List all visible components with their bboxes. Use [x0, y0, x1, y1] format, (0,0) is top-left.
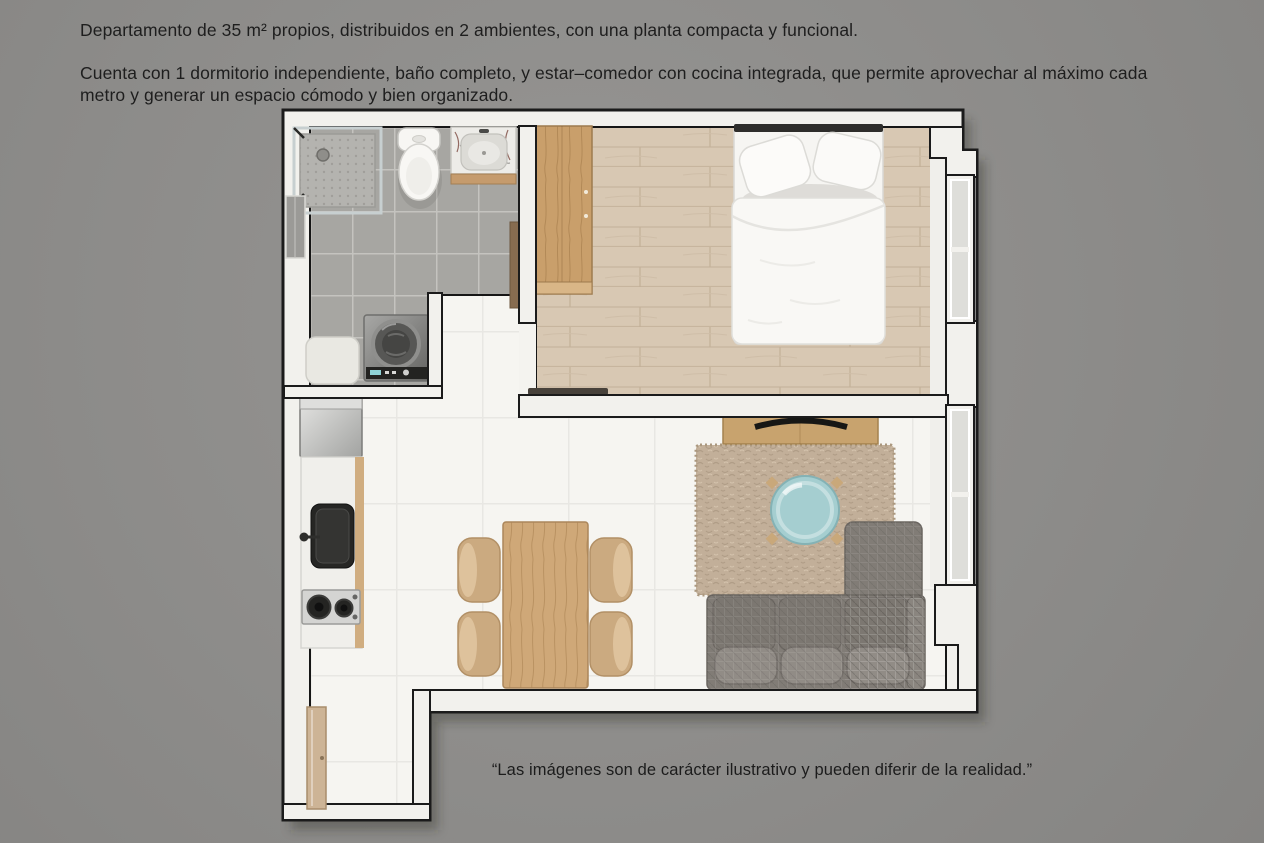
dining-chair [458, 612, 500, 676]
floorplan-image [0, 0, 1264, 843]
duvet [732, 198, 885, 344]
shower [294, 128, 381, 213]
bedroom-doorway [519, 324, 536, 396]
left-wall-window [286, 196, 305, 258]
dining-table [503, 522, 588, 688]
toilet [398, 128, 442, 209]
wall-bath-bedroom [519, 126, 536, 323]
wall-corridor-right [413, 690, 430, 806]
bedroom-wall-shelf [528, 388, 608, 395]
wardrobe [532, 126, 592, 294]
wall-bath-bottom [284, 386, 442, 398]
bedroom-window [946, 175, 974, 323]
wall-bath-hall [428, 293, 442, 398]
bedroom-window-sill [930, 152, 947, 395]
living-window-sill [930, 417, 947, 587]
bed-frame [734, 124, 883, 132]
wall-corridor-bottom [283, 804, 430, 820]
living-window [946, 405, 974, 585]
wall-living-bottom [413, 690, 977, 712]
washing-machine [364, 315, 429, 381]
dining-chair [590, 538, 632, 602]
listing-image: { "page": { "background_color": "#8d8c8a… [0, 0, 1264, 843]
faucet [479, 129, 489, 133]
laundry-basket [306, 337, 359, 384]
door-handle [320, 756, 324, 760]
vanity-cabinet [451, 174, 516, 184]
cooktop [302, 590, 360, 624]
dining-chair [590, 612, 632, 676]
vanity-sink [451, 127, 516, 184]
wall-window-pier [946, 321, 977, 407]
entry-door [307, 707, 326, 809]
refrigerator [300, 395, 362, 457]
dining-chair [458, 538, 500, 602]
wall-bedroom-living [519, 395, 948, 417]
double-bed [732, 124, 885, 344]
